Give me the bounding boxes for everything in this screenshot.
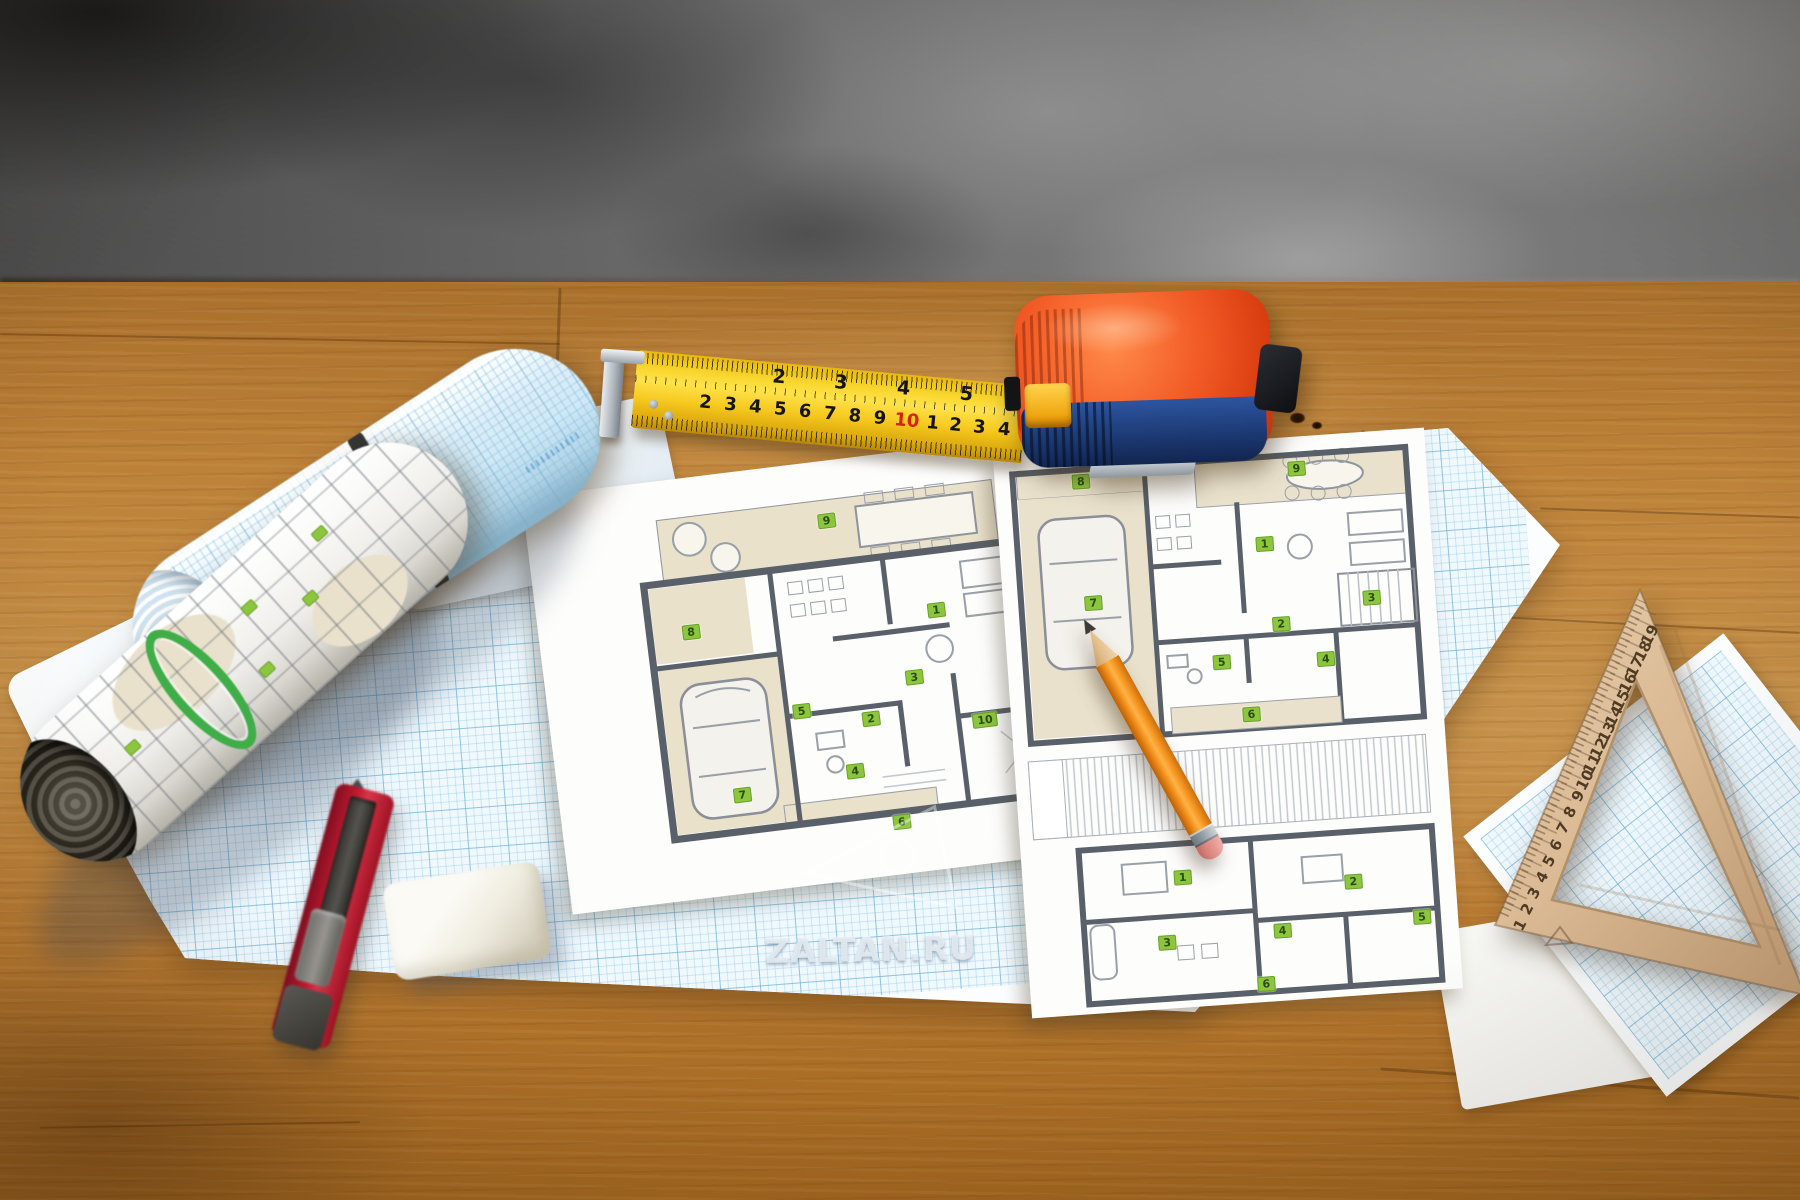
tape-scale-number: 7 bbox=[823, 403, 837, 425]
tape-scale-number: 10 bbox=[893, 409, 920, 432]
triangle-ruler bbox=[1460, 555, 1800, 1025]
tape-scale-number: 2 bbox=[948, 414, 962, 436]
right-plan-floor2-labels: 123456 bbox=[993, 428, 1463, 1019]
tape-lock-button bbox=[1024, 383, 1072, 429]
mini-room-chip bbox=[301, 589, 320, 607]
room-number-chip: 5 bbox=[1413, 909, 1432, 925]
roll-barcode-marks bbox=[525, 431, 581, 473]
room-number-chip: 10 bbox=[972, 711, 999, 729]
tape-blade-slot bbox=[1004, 377, 1021, 412]
tape-measure-body bbox=[1005, 287, 1296, 469]
floor-plan-sheet-right: 897123456 123456 bbox=[993, 428, 1463, 1019]
mini-room-chip bbox=[310, 524, 329, 542]
tape-scale-number: 8 bbox=[848, 405, 862, 427]
tape-scale-number: 3 bbox=[972, 416, 986, 438]
photo-scene: 98135246710 bbox=[0, 0, 1800, 1200]
tape-scale-number: 2 bbox=[698, 391, 712, 413]
room-number-chip: 2 bbox=[861, 710, 880, 727]
triangle-ruler-drawing bbox=[1460, 555, 1800, 1025]
room-number-chip: 6 bbox=[1257, 976, 1276, 992]
mini-room-chip bbox=[124, 738, 143, 756]
tape-scale-number: 1 bbox=[925, 412, 939, 434]
tape-scale-number: 9 bbox=[873, 407, 887, 429]
room-number-chip: 7 bbox=[733, 787, 752, 804]
tape-belt-clip bbox=[1253, 343, 1303, 414]
watermark-text: ZALTAN.RU bbox=[765, 928, 978, 971]
green-rubber-band bbox=[129, 614, 274, 766]
tape-end-hook bbox=[593, 348, 647, 441]
room-number-chip: 3 bbox=[1158, 935, 1177, 951]
room-number-chip: 3 bbox=[905, 669, 924, 686]
room-number-chip: 4 bbox=[846, 763, 865, 780]
room-number-chip: 1 bbox=[1173, 869, 1192, 885]
room-number-chip: 5 bbox=[792, 703, 811, 720]
tape-scale-number: 3 bbox=[723, 394, 737, 416]
room-number-chip: 4 bbox=[1273, 923, 1292, 939]
tape-scale-number: 4 bbox=[748, 396, 762, 418]
room-number-chip: 1 bbox=[927, 602, 946, 619]
tape-scale-number: 5 bbox=[773, 398, 787, 420]
room-number-chip: 2 bbox=[1344, 874, 1363, 890]
mini-room-chip bbox=[258, 660, 277, 678]
room-number-chip: 8 bbox=[681, 624, 700, 641]
hook-plate bbox=[599, 355, 625, 438]
room-number-chip: 9 bbox=[817, 512, 836, 529]
concrete-wall bbox=[0, 0, 1800, 296]
tape-scale-number: 6 bbox=[798, 400, 812, 422]
mini-room-chip bbox=[240, 599, 259, 617]
